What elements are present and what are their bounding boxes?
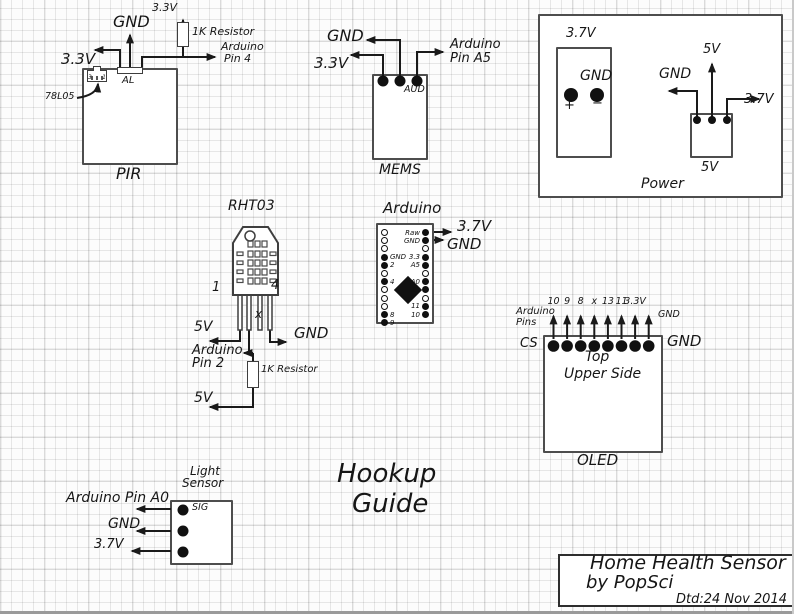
arduino-pin — [381, 303, 388, 310]
pir-gnd-label: GND — [113, 14, 150, 31]
rht03-pin1-label: 1 — [212, 281, 220, 295]
light-sensor-sig-label: SIG — [192, 503, 208, 513]
arduino-pin-label: GND — [390, 254, 406, 261]
arduino-board: GND2489RawGND3.3A5A0131110 — [376, 223, 434, 324]
arduino-pin — [422, 311, 429, 318]
arduino-pin-label: 3.3 — [409, 254, 420, 261]
arduino-pin-label: 8 — [390, 312, 394, 319]
rht03-5v-label: 5V — [194, 320, 212, 335]
mems-arduino-a5-label-2: Pin A5 — [450, 52, 491, 66]
arduino-pin — [381, 254, 388, 261]
title-block-author: by PopSci — [560, 574, 792, 593]
oled-gnd-top-label: GND — [658, 310, 680, 320]
oled-pins-caption-2: Pins — [516, 318, 536, 329]
power-out-5v-label: 5V — [703, 43, 720, 57]
arduino-name: Arduino — [383, 201, 441, 217]
arduino-pin — [381, 311, 388, 318]
arduino-pin — [381, 237, 388, 244]
light-sensor-37v-label: 3.7V — [94, 538, 124, 552]
oled-upper-side-text: Upper Side — [564, 367, 641, 382]
light-sensor-name-2: Sensor — [182, 477, 223, 490]
mems-aud-label: AUD — [404, 85, 425, 95]
arduino-pin-label: 13 — [411, 287, 420, 294]
arduino-pin-label: A0 — [411, 279, 420, 286]
rht03-pullup-resistor — [247, 361, 259, 388]
battery-minus-label: − — [592, 97, 603, 111]
arduino-pin — [422, 229, 429, 236]
oled-pin-number-label: 3.3V — [623, 297, 647, 307]
rht03-resistor-label: 1K Resistor — [261, 365, 318, 376]
arduino-pin — [422, 237, 429, 244]
battery-voltage-label: 3.7V — [566, 27, 596, 41]
battery-gnd-label: GND — [580, 69, 612, 84]
charger-5v-label: 5V — [701, 161, 718, 175]
arduino-pin-label: 10 — [411, 312, 420, 319]
pir-33v-top-label: 3.3V — [152, 2, 177, 14]
light-sensor-a0-label: Arduino Pin A0 — [66, 491, 169, 506]
rht03-name: RHT03 — [228, 199, 275, 214]
arduino-pin-label: Raw — [405, 230, 420, 237]
arduino-pin — [381, 278, 388, 285]
pir-arduino-pin4-label-2: Pin 4 — [224, 53, 251, 65]
pir-arduino-pin4-label-1: Arduino — [221, 41, 264, 53]
hookup-guide-diagram: 3 1 GND2489RawGND3.3A5A0131110 GND 3.3V … — [0, 0, 794, 614]
oled-top-text: Top — [585, 350, 609, 365]
page-heading-line1: Hookup — [337, 461, 436, 488]
page-heading-line2: Guide — [352, 491, 428, 518]
pir-regulator-label: 78L05 — [45, 92, 74, 102]
rht03-leg-1 — [238, 293, 242, 330]
arduino-pin-label: 4 — [390, 279, 394, 286]
arduino-pin-label: 9 — [390, 320, 394, 327]
arduino-pin — [381, 295, 388, 302]
mems-33v-label: 3.3V — [314, 56, 348, 72]
arduino-pin — [381, 286, 388, 293]
arduino-pin — [422, 254, 429, 261]
rht03-leg-4 — [268, 293, 272, 330]
arduino-pin-label: 2 — [390, 262, 394, 269]
mems-name: MEMS — [379, 163, 421, 178]
pir-al-connector — [117, 67, 143, 74]
rht03-mount-hole — [245, 231, 255, 241]
arduino-pin — [381, 319, 388, 326]
arduino-gnd-label: GND — [447, 237, 481, 253]
arduino-pin-label: 11 — [411, 303, 420, 310]
arduino-pin — [422, 278, 429, 285]
regulator-pin3-label: 3 — [88, 74, 92, 81]
rht03-gnd-label: GND — [294, 326, 328, 342]
rht03-arduino-pin2-label-2: Pin 2 — [192, 357, 224, 371]
pir-regulator-78l05: 3 1 — [87, 70, 107, 82]
oled-name: OLED — [577, 453, 618, 469]
arduino-pin-label: A5 — [411, 262, 420, 269]
light-sensor-gnd-label: GND — [108, 517, 140, 532]
arduino-pin-label: GND — [404, 238, 420, 245]
arduino-pin — [422, 262, 429, 269]
mems-gnd-label: GND — [327, 28, 364, 45]
pir-al-label: AL — [122, 76, 134, 87]
power-out-37v-label: 3.7V — [744, 93, 774, 107]
rht03-nc-mark: x — [255, 308, 262, 321]
arduino-pin — [422, 270, 429, 277]
arduino-pin — [381, 245, 388, 252]
title-block-date: Dtd:24 Nov 2014 — [676, 593, 792, 607]
pir-resistor-label: 1K Resistor — [192, 26, 254, 38]
arduino-pin — [422, 245, 429, 252]
rht03-5v-bottom-label: 5V — [194, 391, 212, 406]
arduino-pin — [422, 303, 429, 310]
power-section-name: Power — [641, 177, 684, 192]
rht03-pin4-label: 4 — [271, 279, 279, 293]
rht03-leg-2 — [247, 293, 251, 330]
mems-arduino-a5-label-1: Arduino — [450, 38, 501, 52]
battery-plus-label: + — [564, 99, 575, 113]
oled-gnd-right-label: GND — [667, 334, 701, 350]
arduino-pin — [422, 286, 429, 293]
power-out-gnd-label: GND — [659, 67, 691, 82]
oled-cs-label: CS — [520, 337, 538, 351]
arduino-pin — [381, 229, 388, 236]
regulator-pin1-label: 1 — [102, 74, 106, 81]
charger-box — [690, 113, 733, 158]
pir-name: PIR — [116, 166, 141, 183]
arduino-pin — [422, 295, 429, 302]
title-block-title: Home Health Sensor — [560, 554, 792, 574]
title-block: Home Health Sensor by PopSci Dtd:24 Nov … — [558, 554, 794, 607]
arduino-pin — [381, 262, 388, 269]
pir-pullup-resistor — [177, 22, 189, 47]
oled-pins-caption-1: Arduino — [516, 307, 555, 318]
arduino-37v-label: 3.7V — [457, 219, 491, 235]
arduino-pin — [381, 270, 388, 277]
pir-33v-label: 3.3V — [61, 52, 95, 68]
